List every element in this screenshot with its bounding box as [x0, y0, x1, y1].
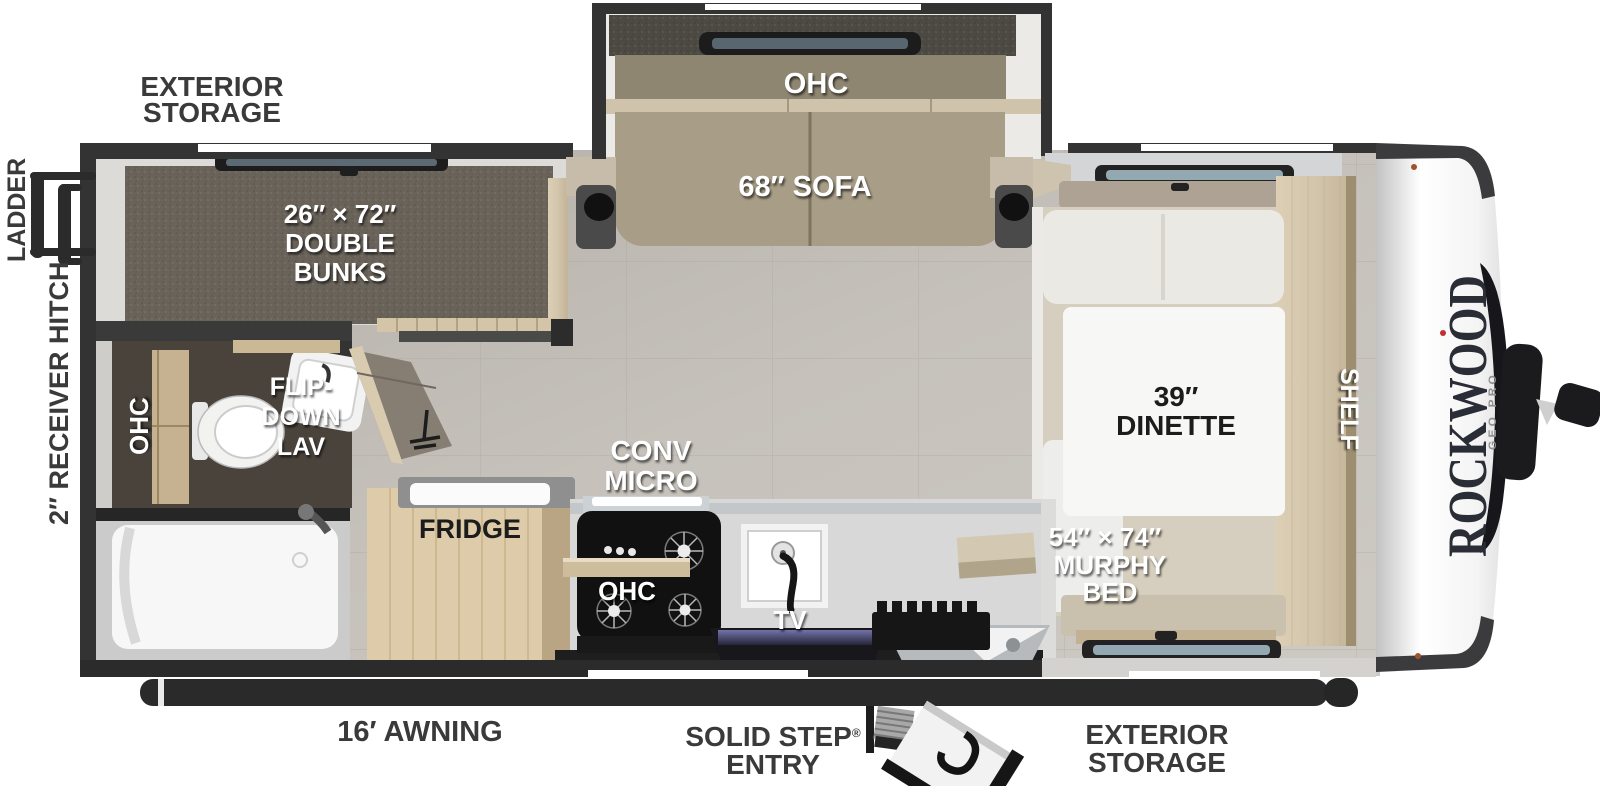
svg-text:STORAGE: STORAGE: [143, 97, 281, 128]
svg-text:SOLID STEP®: SOLID STEP®: [685, 721, 860, 752]
svg-text:BED: BED: [1083, 577, 1138, 607]
svg-text:TV: TV: [773, 605, 807, 635]
svg-text:26″ × 72″: 26″ × 72″: [284, 199, 396, 229]
svg-text:OHC: OHC: [598, 576, 656, 606]
svg-text:CONV: CONV: [611, 435, 692, 466]
svg-text:DINETTE: DINETTE: [1116, 410, 1236, 441]
svg-text:MURPHY: MURPHY: [1054, 550, 1167, 580]
svg-text:STORAGE: STORAGE: [1088, 747, 1226, 778]
svg-text:54″ × 74″: 54″ × 74″: [1049, 522, 1161, 552]
svg-text:FRIDGE: FRIDGE: [419, 514, 521, 544]
svg-text:DOWN: DOWN: [261, 403, 340, 431]
svg-text:MICRO: MICRO: [604, 465, 697, 496]
svg-text:BUNKS: BUNKS: [294, 257, 386, 287]
svg-text:OHC: OHC: [124, 397, 154, 455]
svg-text:FLIP-: FLIP-: [270, 373, 333, 401]
svg-text:39″: 39″: [1154, 381, 1199, 412]
svg-text:16′ AWNING: 16′ AWNING: [337, 716, 502, 748]
svg-text:68″ SOFA: 68″ SOFA: [738, 171, 871, 203]
svg-text:EXTERIOR: EXTERIOR: [1085, 719, 1228, 750]
svg-text:2″ RECEIVER HITCH: 2″ RECEIVER HITCH: [44, 262, 74, 525]
svg-text:LAV: LAV: [277, 433, 325, 461]
svg-text:DOUBLE: DOUBLE: [285, 228, 395, 258]
svg-text:OHC: OHC: [784, 68, 849, 100]
svg-text:ENTRY: ENTRY: [726, 749, 820, 780]
svg-text:SHELF: SHELF: [1335, 368, 1363, 450]
svg-text:LADDER: LADDER: [3, 158, 31, 262]
